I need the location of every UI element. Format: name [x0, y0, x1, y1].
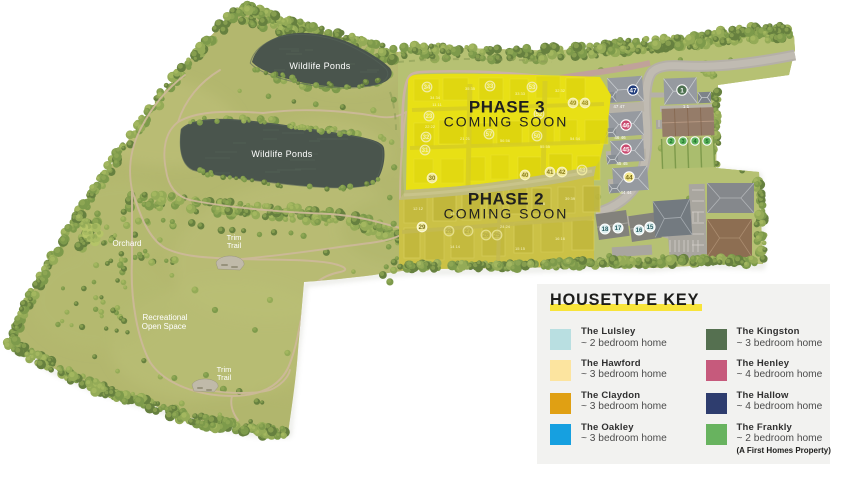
svg-text:45 45: 45 45 [616, 161, 628, 166]
svg-text:23: 23 [426, 114, 433, 120]
svg-text:32 32: 32 32 [555, 88, 566, 93]
svg-text:21 21: 21 21 [460, 136, 471, 141]
svg-text:34: 34 [424, 85, 431, 91]
svg-text:Recreational: Recreational [143, 313, 188, 322]
svg-text:50: 50 [534, 134, 541, 140]
svg-text:Trail: Trail [227, 241, 242, 250]
svg-text:29: 29 [419, 225, 426, 231]
svg-text:43: 43 [579, 168, 586, 174]
svg-text:24 24: 24 24 [500, 224, 511, 229]
svg-text:47 47: 47 47 [613, 104, 625, 109]
svg-text:27: 27 [465, 229, 472, 235]
svg-text:17: 17 [615, 226, 622, 232]
svg-text:44: 44 [625, 174, 633, 181]
svg-text:Wildlife Ponds: Wildlife Ponds [289, 61, 350, 71]
svg-text:26: 26 [483, 233, 490, 239]
svg-text:COMING SOON: COMING SOON [444, 205, 569, 221]
svg-text:Open Space: Open Space [142, 322, 187, 331]
svg-text:46 46: 46 46 [614, 135, 626, 140]
svg-text:1: 1 [680, 87, 684, 94]
svg-text:16: 16 [636, 228, 643, 234]
svg-text:28: 28 [446, 229, 453, 235]
svg-text:12 12: 12 12 [413, 206, 424, 211]
svg-text:35 35: 35 35 [465, 86, 476, 91]
svg-text:57: 57 [486, 132, 493, 138]
svg-text:31: 31 [422, 148, 429, 154]
svg-text:16 16: 16 16 [555, 236, 566, 241]
svg-text:11 11: 11 11 [432, 102, 442, 107]
svg-text:32: 32 [423, 135, 430, 141]
svg-text:55 55: 55 55 [540, 144, 551, 149]
svg-text:49: 49 [570, 101, 577, 107]
svg-text:33: 33 [487, 84, 494, 90]
svg-text:40: 40 [522, 173, 529, 179]
svg-text:56 56: 56 56 [500, 138, 511, 143]
svg-text:15 15: 15 15 [515, 246, 526, 251]
svg-text:22 22: 22 22 [425, 124, 436, 129]
svg-text:30: 30 [429, 176, 436, 182]
svg-text:18: 18 [602, 227, 609, 233]
svg-text:Wildlife Ponds: Wildlife Ponds [251, 149, 312, 159]
svg-text:Orchard: Orchard [113, 239, 142, 248]
svg-text:1 1: 1 1 [683, 104, 690, 109]
svg-text:34 34: 34 34 [430, 95, 441, 100]
svg-text:41: 41 [547, 170, 554, 176]
svg-text:COMING SOON: COMING SOON [444, 113, 569, 129]
svg-text:25: 25 [494, 233, 501, 239]
svg-text:15: 15 [647, 225, 654, 231]
svg-text:45: 45 [622, 146, 630, 153]
svg-text:48: 48 [582, 101, 589, 107]
svg-text:46: 46 [622, 122, 630, 129]
svg-text:Trail: Trail [217, 373, 232, 382]
svg-text:14 14: 14 14 [450, 244, 461, 249]
svg-text:42: 42 [559, 170, 566, 176]
svg-text:5: 5 [705, 139, 708, 145]
svg-text:39 39: 39 39 [565, 196, 576, 201]
svg-text:53: 53 [529, 85, 536, 91]
svg-text:33 33: 33 33 [515, 91, 526, 96]
svg-text:2: 2 [669, 139, 672, 145]
svg-text:44 44: 44 44 [620, 190, 632, 195]
svg-text:47: 47 [629, 87, 637, 94]
svg-text:54 54: 54 54 [570, 136, 581, 141]
svg-text:3: 3 [681, 139, 684, 145]
